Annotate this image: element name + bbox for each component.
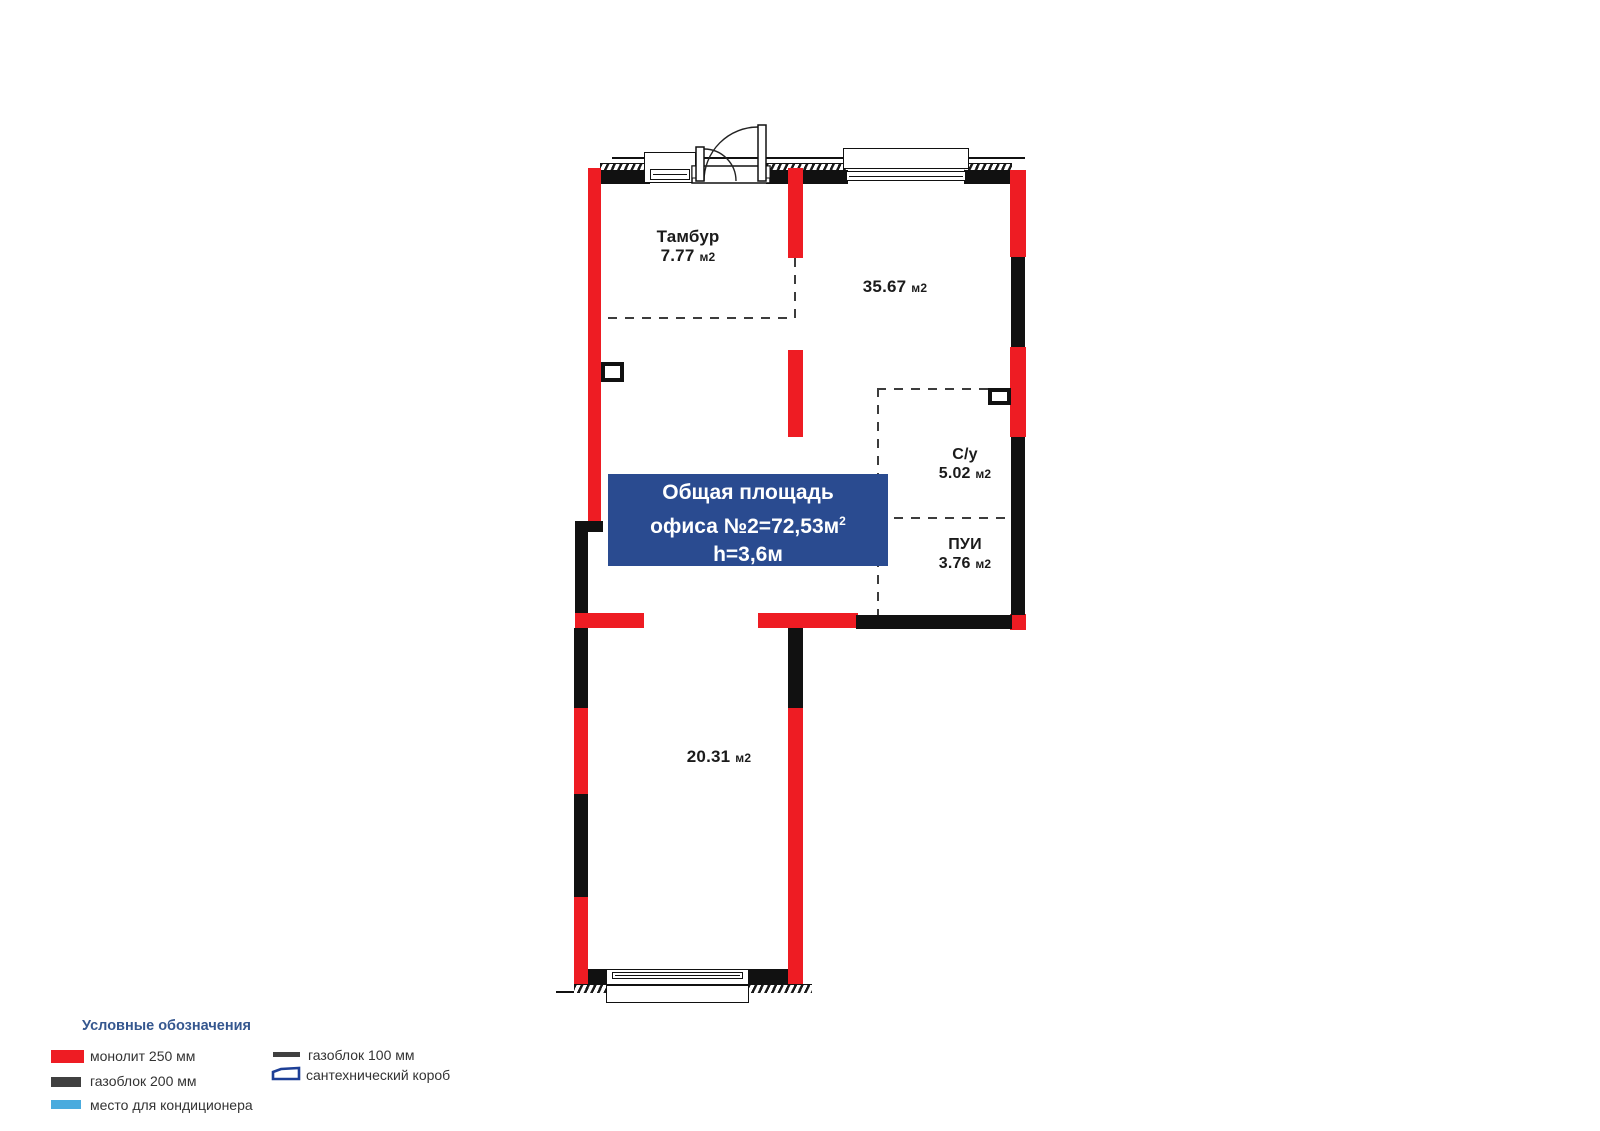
floor-plan-page: Тамбур 7.77 м2 35.67 м2 С/у 5.02 м2 ПУИ … <box>0 0 1600 1131</box>
wall-monolith-lowerright <box>788 708 803 985</box>
total-area-line1: Общая площадь <box>608 479 888 507</box>
wall-monolith-right <box>1010 347 1026 437</box>
legend-swatch-monolith <box>51 1050 84 1063</box>
wall-gasblock-right <box>1011 257 1025 347</box>
dashed-partition-line <box>794 258 796 318</box>
window <box>843 148 969 169</box>
sanitary-duct-icon <box>601 362 624 382</box>
total-area-line2: офиса №2=72,53м2 <box>608 507 888 541</box>
sanitary-duct-icon <box>988 388 1011 405</box>
legend-label-gasblock200: газоблок 200 мм <box>90 1072 197 1090</box>
wall-gasblock-midleft <box>575 521 588 617</box>
ceiling-height: h=3,6м <box>608 541 888 569</box>
wall-monolith-partition-upper <box>788 168 803 258</box>
window-frame <box>612 972 743 979</box>
wall-gasblock-top <box>964 170 1012 184</box>
legend-swatch-gasblock200 <box>51 1077 81 1087</box>
wall-gasblock-bar-right <box>856 615 1012 629</box>
legend-title: Условные обозначения <box>82 1018 251 1034</box>
wall-gasblock-bottom <box>588 969 608 985</box>
legend-label-monolith: монолит 250 мм <box>90 1047 195 1065</box>
room-label-tambur: Тамбур 7.77 м2 <box>628 227 748 267</box>
legend-label-ac: место для кондиционера <box>90 1096 253 1114</box>
wall-monolith-bar-right <box>758 613 858 628</box>
room-label-su: С/у 5.02 м2 <box>915 445 1015 484</box>
wall-monolith-right <box>1010 170 1026 257</box>
window-frame <box>846 171 966 181</box>
legend-label-gasblock100: газоблок 100 мм <box>308 1046 415 1064</box>
wall-gasblock-lowerleft <box>574 628 588 708</box>
legend-swatch-gasblock100 <box>273 1052 300 1057</box>
room-label-hall: 35.67 м2 <box>835 277 955 298</box>
legend-swatch-sanbox <box>271 1066 301 1081</box>
dashed-partition-line <box>608 317 789 319</box>
wall-monolith-corner <box>1010 614 1026 630</box>
wall-monolith-lowerleft <box>574 897 588 985</box>
wall-hatching <box>748 984 812 993</box>
dashed-partition-line <box>877 388 989 390</box>
wall-monolith-partition-lower <box>788 350 803 437</box>
wall-hatching <box>574 984 608 993</box>
wall-monolith-lowerleft <box>574 708 588 794</box>
wall-gasblock-top <box>600 170 650 184</box>
room-label-lower: 20.31 м2 <box>659 747 779 768</box>
legend-label-sanbox: сантехнический короб <box>306 1066 450 1084</box>
wall-gasblock-top <box>766 170 848 184</box>
dashed-partition-line <box>877 517 1011 519</box>
window-sill <box>606 985 749 1003</box>
total-area-box: Общая площадь офиса №2=72,53м2 h=3,6м <box>608 474 888 566</box>
wall-gasblock-bottom <box>748 969 788 985</box>
room-label-pui: ПУИ 3.76 м2 <box>915 535 1015 574</box>
wall-gasblock-lowerleft <box>574 794 588 897</box>
wall-monolith-bar-left <box>575 613 644 628</box>
legend-swatch-ac <box>51 1100 81 1109</box>
entrance-door <box>678 113 778 187</box>
wall-monolith-left <box>588 168 601 525</box>
wall-gasblock-lowerright <box>788 628 803 708</box>
